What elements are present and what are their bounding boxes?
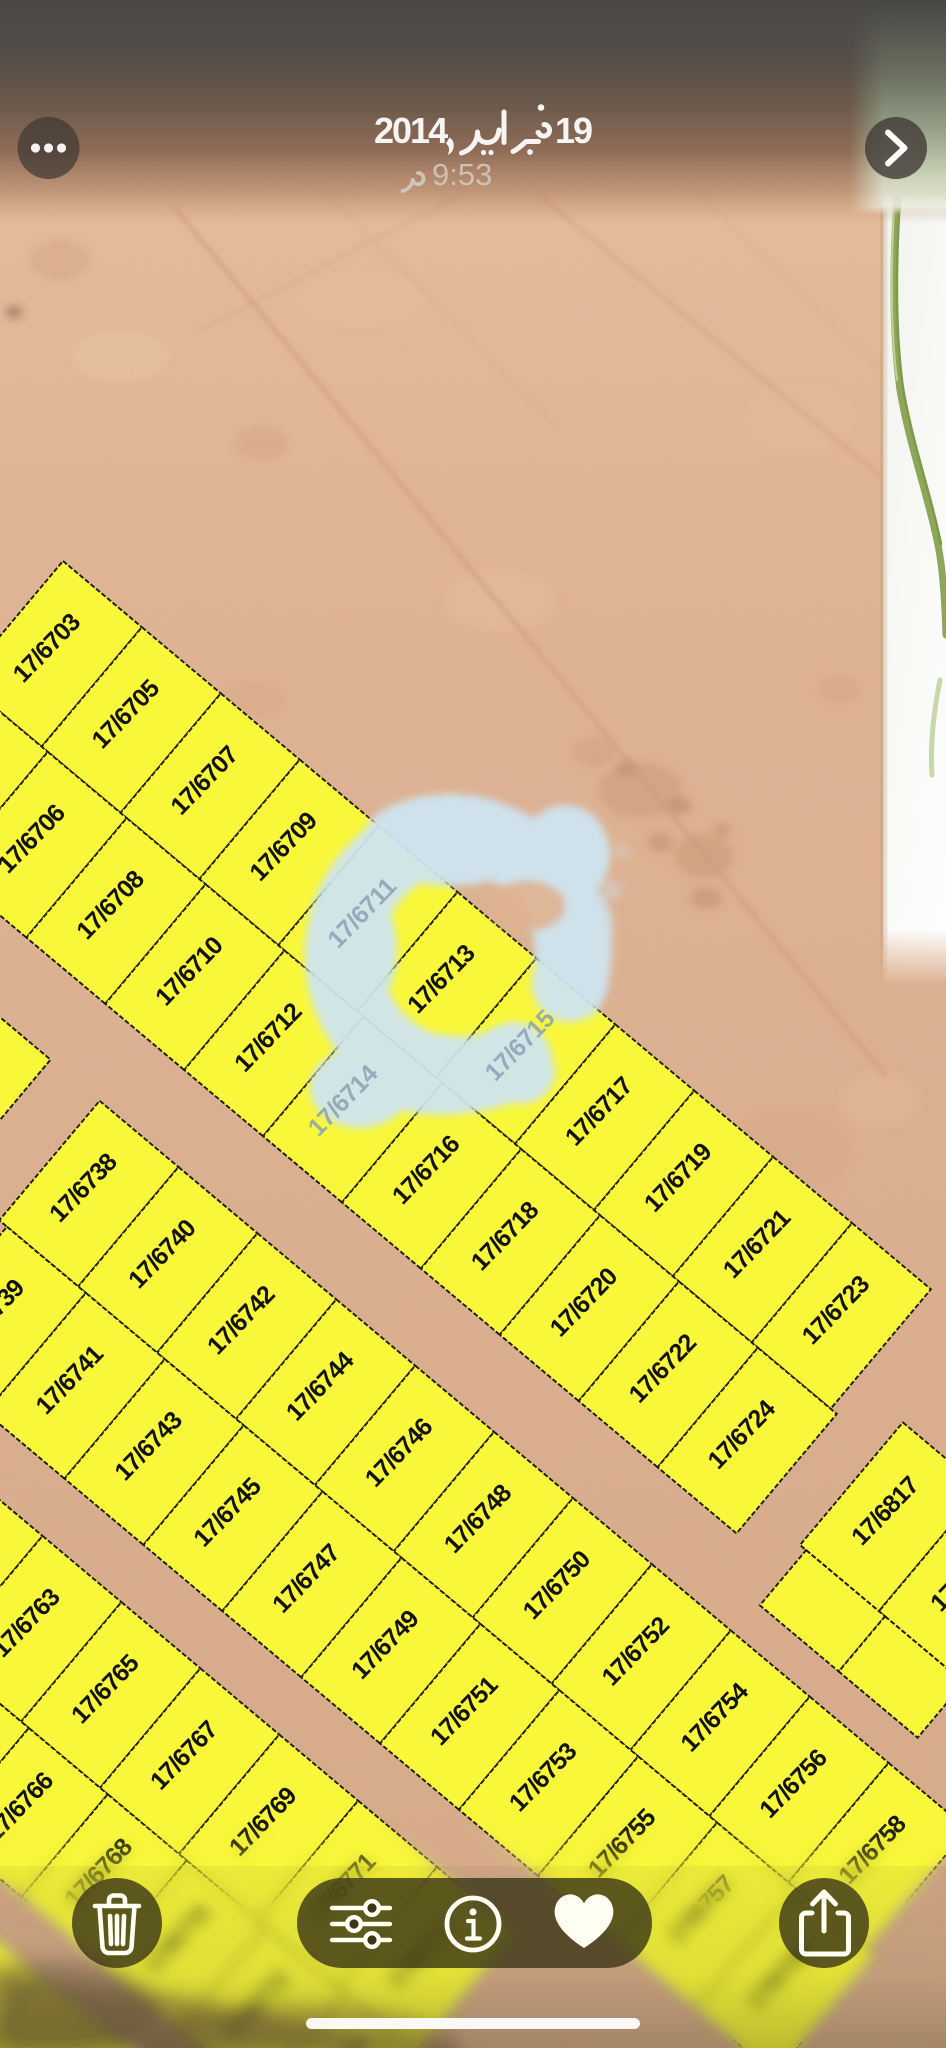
svg-text:9:53: 9:53 bbox=[432, 157, 492, 192]
svg-text:2014: 2014 bbox=[374, 110, 448, 151]
svg-text:19: 19 bbox=[555, 110, 592, 151]
